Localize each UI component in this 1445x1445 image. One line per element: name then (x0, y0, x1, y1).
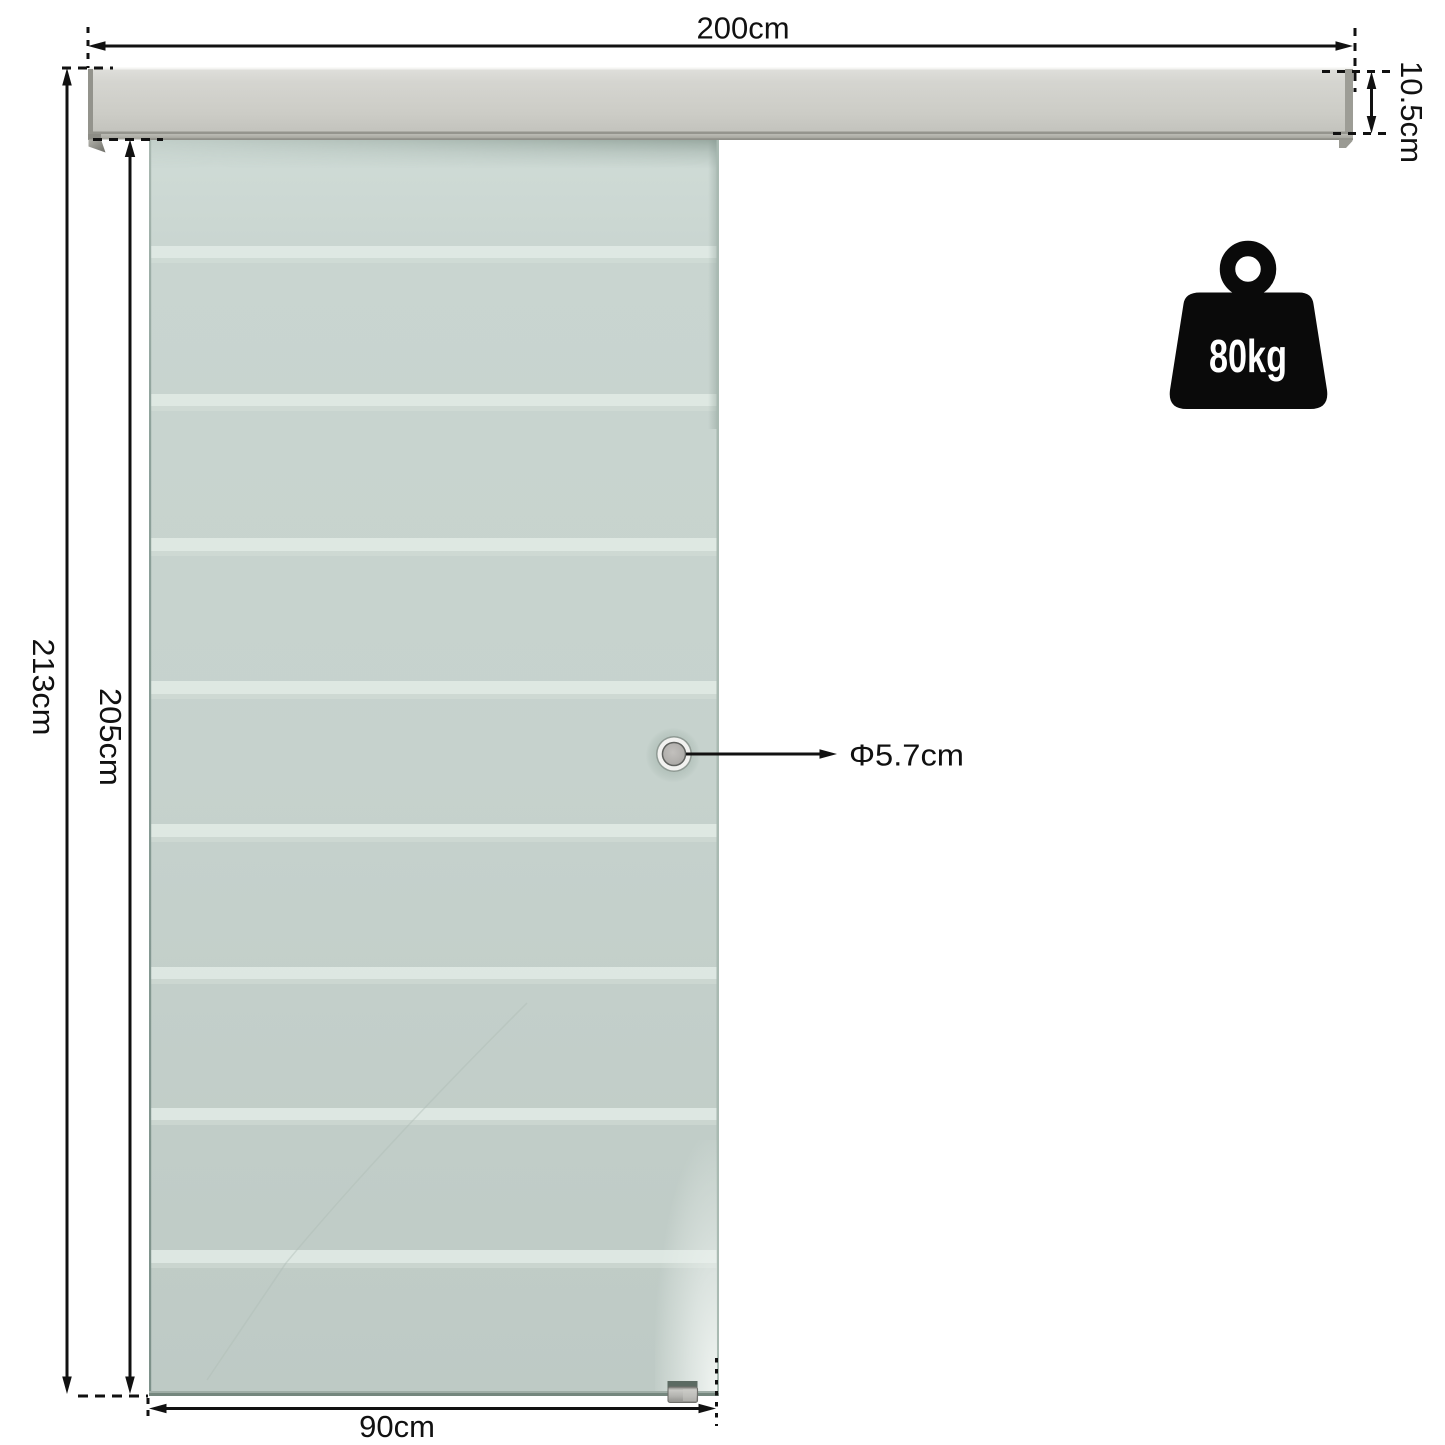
svg-text:Φ5.7cm: Φ5.7cm (849, 738, 964, 773)
svg-text:10.5cm: 10.5cm (1394, 61, 1429, 163)
svg-text:213cm: 213cm (26, 639, 61, 736)
svg-text:205cm: 205cm (93, 688, 128, 786)
svg-text:200cm: 200cm (696, 11, 789, 46)
svg-text:80kg: 80kg (1209, 330, 1287, 382)
svg-text:90cm: 90cm (359, 1409, 435, 1444)
